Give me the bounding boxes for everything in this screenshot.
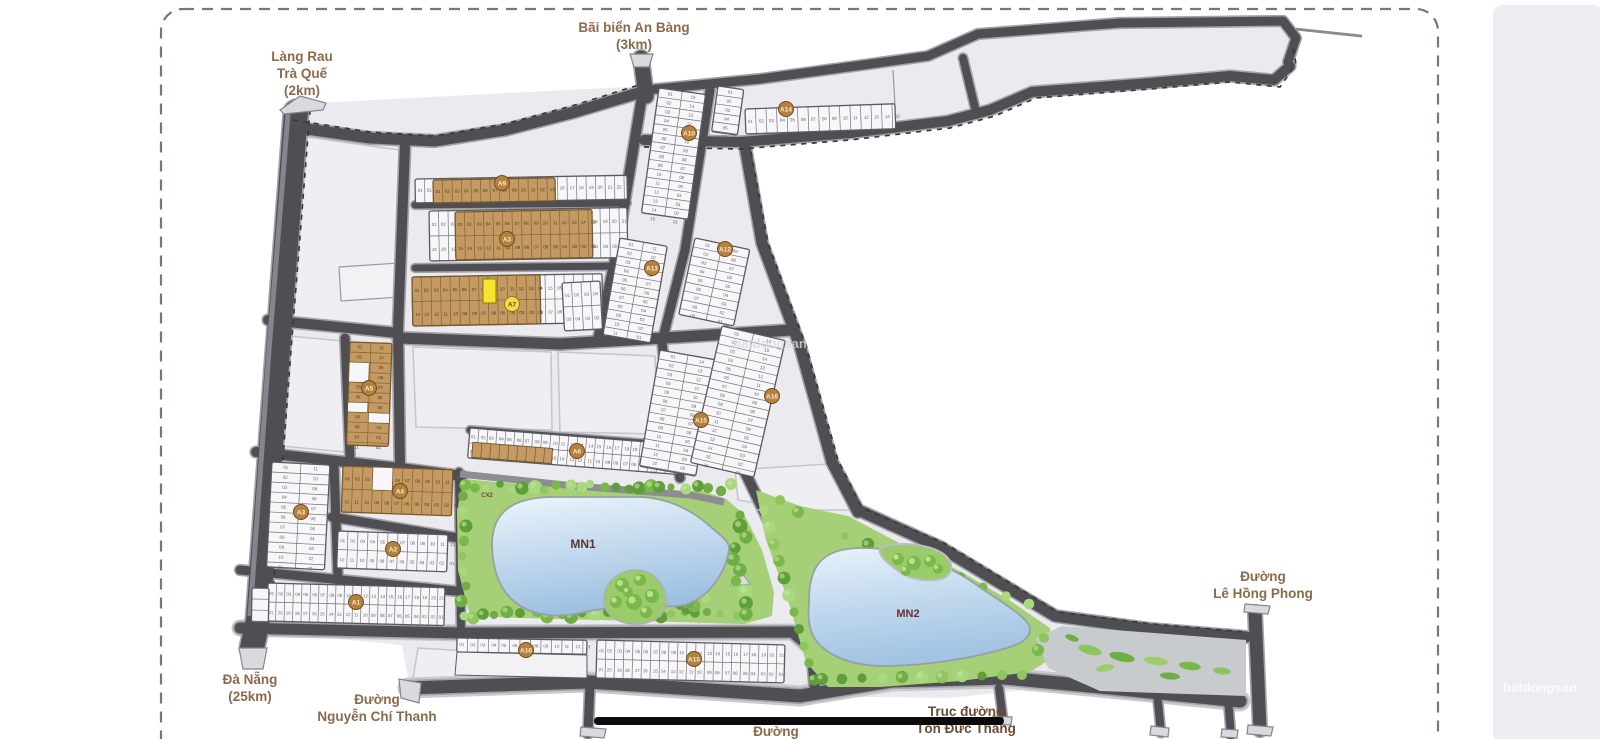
svg-text:12: 12	[339, 557, 345, 562]
svg-text:09: 09	[420, 541, 426, 546]
svg-text:16: 16	[557, 285, 563, 290]
svg-text:04: 04	[625, 649, 631, 654]
svg-text:05: 05	[790, 117, 796, 122]
svg-text:07: 07	[548, 310, 554, 315]
svg-text:11: 11	[440, 542, 445, 547]
svg-text:A3: A3	[503, 237, 512, 244]
svg-text:03: 03	[572, 244, 578, 249]
svg-text:15: 15	[725, 651, 731, 656]
svg-text:12: 12	[679, 669, 685, 674]
svg-text:08: 08	[524, 221, 530, 226]
svg-text:13: 13	[371, 594, 377, 599]
svg-text:07: 07	[405, 478, 411, 483]
svg-text:06: 06	[462, 287, 468, 292]
svg-text:MN1: MN1	[570, 537, 596, 551]
svg-text:15: 15	[458, 246, 464, 251]
svg-text:18: 18	[751, 652, 757, 657]
svg-text:06: 06	[557, 309, 563, 314]
svg-text:04: 04	[443, 287, 449, 292]
svg-text:04: 04	[575, 316, 581, 321]
svg-text:05: 05	[453, 287, 459, 292]
svg-text:14: 14	[581, 220, 587, 225]
svg-text:21: 21	[599, 667, 605, 672]
svg-text:07: 07	[394, 501, 400, 506]
svg-text:16: 16	[397, 594, 403, 599]
svg-text:18: 18	[625, 668, 631, 673]
svg-text:17: 17	[303, 611, 309, 616]
svg-text:Đường: Đường	[1240, 569, 1286, 584]
svg-text:07: 07	[280, 525, 286, 530]
svg-text:08: 08	[533, 643, 539, 648]
svg-text:07: 07	[378, 385, 384, 390]
svg-text:14: 14	[467, 246, 473, 251]
svg-text:09: 09	[312, 486, 318, 491]
svg-text:A2: A2	[389, 547, 398, 554]
svg-text:15: 15	[653, 668, 659, 673]
svg-text:01: 01	[283, 465, 289, 470]
svg-text:08: 08	[661, 650, 667, 655]
svg-text:09: 09	[279, 544, 285, 549]
svg-text:06: 06	[733, 671, 739, 676]
svg-text:A15: A15	[688, 657, 700, 664]
svg-text:06: 06	[356, 394, 362, 399]
svg-text:14: 14	[885, 114, 891, 119]
svg-text:10: 10	[430, 541, 436, 546]
svg-text:A4: A4	[396, 489, 405, 496]
svg-text:01: 01	[565, 293, 571, 298]
svg-text:02: 02	[278, 591, 284, 596]
svg-text:11: 11	[565, 644, 570, 649]
svg-text:03: 03	[434, 502, 440, 507]
svg-text:08: 08	[355, 414, 361, 419]
svg-text:10: 10	[435, 479, 441, 484]
svg-text:09: 09	[462, 311, 468, 316]
svg-text:05: 05	[501, 643, 507, 648]
svg-text:Trục đường: Trục đường	[928, 704, 1004, 719]
svg-text:05: 05	[356, 384, 362, 389]
svg-text:06: 06	[483, 188, 489, 193]
svg-text:02: 02	[427, 188, 433, 193]
svg-text:15: 15	[388, 594, 394, 599]
svg-text:04: 04	[295, 592, 301, 597]
svg-text:04: 04	[414, 614, 420, 619]
svg-text:16: 16	[733, 652, 739, 657]
svg-text:02: 02	[467, 222, 473, 227]
svg-text:12: 12	[450, 542, 456, 547]
svg-text:05: 05	[405, 614, 411, 619]
svg-text:02: 02	[431, 614, 437, 619]
svg-text:02: 02	[350, 538, 356, 543]
svg-text:07: 07	[388, 613, 394, 618]
svg-text:16: 16	[560, 185, 566, 190]
svg-text:A5: A5	[365, 386, 374, 393]
svg-text:03: 03	[286, 591, 292, 596]
svg-text:05: 05	[310, 526, 316, 531]
svg-text:12: 12	[363, 593, 369, 598]
svg-text:08: 08	[415, 479, 421, 484]
svg-text:09: 09	[534, 221, 540, 226]
svg-text:10: 10	[843, 115, 849, 120]
svg-text:02: 02	[441, 222, 447, 227]
svg-text:10: 10	[697, 670, 703, 675]
svg-text:04: 04	[562, 244, 568, 249]
svg-text:05: 05	[414, 502, 420, 507]
svg-text:21: 21	[605, 285, 611, 290]
svg-text:03: 03	[377, 425, 383, 430]
svg-text:Trà Quế: Trà Quế	[277, 66, 328, 81]
svg-text:08: 08	[822, 116, 828, 121]
svg-text:01: 01	[459, 642, 465, 647]
svg-text:02: 02	[283, 475, 289, 480]
svg-text:03: 03	[455, 189, 461, 194]
svg-text:09: 09	[425, 479, 431, 484]
svg-text:03: 03	[282, 485, 288, 490]
svg-text:(2km): (2km)	[284, 83, 320, 98]
svg-text:16: 16	[643, 668, 649, 673]
svg-text:09: 09	[543, 644, 549, 649]
svg-text:07: 07	[320, 592, 326, 597]
svg-text:batdongsan: batdongsan	[733, 336, 807, 351]
svg-text:14: 14	[715, 651, 721, 656]
svg-text:06: 06	[312, 592, 318, 597]
svg-text:19: 19	[603, 219, 609, 224]
svg-text:03: 03	[429, 560, 435, 565]
svg-text:20: 20	[769, 653, 775, 658]
svg-text:06: 06	[397, 613, 403, 618]
svg-text:12: 12	[575, 644, 581, 649]
svg-text:09: 09	[355, 424, 361, 429]
svg-text:CX2: CX2	[481, 493, 493, 499]
svg-text:03: 03	[480, 642, 486, 647]
svg-text:09: 09	[374, 500, 380, 505]
svg-text:02: 02	[594, 315, 600, 320]
svg-text:13: 13	[707, 651, 713, 656]
svg-text:02: 02	[607, 648, 613, 653]
svg-text:11: 11	[853, 115, 858, 120]
svg-text:05: 05	[409, 560, 415, 565]
svg-text:13: 13	[585, 644, 591, 649]
svg-text:06: 06	[311, 516, 317, 521]
svg-text:05: 05	[380, 539, 386, 544]
svg-text:06: 06	[399, 559, 405, 564]
svg-text:15: 15	[895, 114, 901, 119]
svg-text:05: 05	[500, 310, 506, 315]
svg-text:12: 12	[540, 187, 546, 192]
svg-text:12: 12	[519, 286, 525, 291]
svg-text:19: 19	[617, 668, 623, 673]
svg-text:01: 01	[269, 591, 275, 596]
svg-text:08: 08	[384, 500, 390, 505]
svg-text:11: 11	[510, 286, 515, 291]
svg-text:12: 12	[864, 115, 870, 120]
svg-text:13: 13	[477, 246, 483, 251]
svg-text:13: 13	[874, 114, 880, 119]
svg-text:01: 01	[376, 445, 382, 450]
svg-text:06: 06	[505, 221, 511, 226]
svg-text:01: 01	[340, 538, 346, 543]
svg-text:06: 06	[404, 501, 410, 506]
svg-text:08: 08	[379, 558, 385, 563]
svg-text:09: 09	[369, 558, 375, 563]
svg-text:10: 10	[679, 650, 685, 655]
svg-text:23: 23	[627, 184, 633, 189]
svg-text:19: 19	[761, 652, 767, 657]
svg-text:11: 11	[278, 564, 283, 569]
svg-text:01: 01	[432, 222, 438, 227]
svg-text:14: 14	[415, 312, 421, 317]
svg-text:10: 10	[554, 644, 560, 649]
svg-text:A9: A9	[498, 181, 507, 188]
svg-text:02: 02	[470, 642, 476, 647]
svg-text:11: 11	[553, 220, 558, 225]
svg-text:05: 05	[553, 244, 559, 249]
svg-text:01: 01	[748, 119, 754, 124]
svg-text:15: 15	[548, 286, 554, 291]
svg-text:Lê Hồng Phong: Lê Hồng Phong	[1213, 586, 1313, 601]
svg-text:10: 10	[543, 220, 549, 225]
svg-text:18: 18	[414, 595, 420, 600]
svg-text:20: 20	[278, 610, 284, 615]
svg-text:02: 02	[355, 476, 361, 481]
svg-text:10: 10	[521, 187, 527, 192]
svg-text:06: 06	[512, 643, 518, 648]
svg-text:05: 05	[603, 291, 609, 296]
svg-text:19: 19	[589, 185, 595, 190]
svg-text:01: 01	[779, 672, 785, 677]
svg-text:13: 13	[529, 286, 535, 291]
svg-text:20: 20	[607, 667, 613, 672]
svg-text:12: 12	[486, 245, 492, 250]
svg-text:02: 02	[444, 503, 450, 508]
svg-text:05: 05	[474, 188, 480, 193]
svg-text:10: 10	[500, 286, 506, 291]
svg-text:A1: A1	[352, 600, 361, 607]
svg-text:14: 14	[329, 612, 335, 617]
svg-text:01: 01	[357, 344, 363, 349]
svg-text:07: 07	[725, 670, 731, 675]
svg-text:02: 02	[424, 288, 430, 293]
svg-text:03: 03	[360, 539, 366, 544]
svg-text:05: 05	[303, 592, 309, 597]
svg-text:06: 06	[281, 515, 287, 520]
svg-text:01: 01	[345, 476, 351, 481]
svg-text:08: 08	[524, 245, 530, 250]
svg-text:21: 21	[608, 185, 614, 190]
svg-text:21: 21	[432, 247, 438, 252]
svg-text:11: 11	[689, 669, 694, 674]
svg-text:04: 04	[282, 495, 288, 500]
svg-text:07: 07	[389, 559, 395, 564]
svg-text:09: 09	[707, 670, 713, 675]
svg-text:10: 10	[313, 476, 319, 481]
svg-text:01: 01	[591, 244, 597, 249]
svg-text:06: 06	[378, 395, 384, 400]
svg-text:01: 01	[308, 566, 314, 571]
svg-text:04: 04	[486, 221, 492, 226]
svg-text:12: 12	[562, 220, 568, 225]
svg-text:01: 01	[436, 189, 442, 194]
svg-text:A15: A15	[695, 418, 707, 425]
svg-text:12: 12	[344, 499, 350, 504]
svg-text:03: 03	[584, 292, 590, 297]
svg-text:03: 03	[434, 288, 440, 293]
svg-text:A16: A16	[520, 648, 532, 655]
svg-text:11: 11	[379, 345, 384, 350]
svg-text:09: 09	[671, 650, 677, 655]
svg-text:05: 05	[743, 671, 749, 676]
svg-text:07: 07	[653, 649, 659, 654]
svg-text:01: 01	[439, 614, 445, 619]
svg-text:08: 08	[472, 311, 478, 316]
svg-text:02: 02	[439, 561, 445, 566]
svg-text:03: 03	[585, 316, 591, 321]
svg-text:Nguyễn Chí Thanh: Nguyễn Chí Thanh	[317, 709, 436, 724]
svg-text:14: 14	[380, 594, 386, 599]
svg-text:11: 11	[350, 557, 355, 562]
svg-text:04: 04	[370, 539, 376, 544]
svg-text:A3: A3	[297, 510, 306, 517]
svg-text:16: 16	[312, 611, 318, 616]
svg-text:batdongsan: batdongsan	[1503, 680, 1577, 695]
svg-text:A12: A12	[719, 247, 731, 254]
svg-text:14: 14	[538, 286, 544, 291]
svg-text:07: 07	[515, 221, 521, 226]
svg-text:17: 17	[570, 185, 576, 190]
svg-text:10: 10	[379, 355, 385, 360]
svg-text:03: 03	[769, 118, 775, 123]
svg-text:09: 09	[371, 613, 377, 618]
svg-text:11: 11	[354, 612, 359, 617]
svg-text:03: 03	[365, 477, 371, 482]
svg-text:04: 04	[491, 643, 497, 648]
svg-text:.com.vn: .com.vn	[1528, 701, 1553, 708]
svg-text:21: 21	[269, 610, 275, 615]
svg-text:01: 01	[415, 288, 421, 293]
svg-text:08: 08	[280, 535, 286, 540]
svg-text:13: 13	[424, 312, 430, 317]
svg-text:06: 06	[395, 478, 401, 483]
svg-text:Đà Nẵng: Đà Nẵng	[223, 672, 278, 687]
svg-text:02: 02	[769, 672, 775, 677]
svg-text:20: 20	[612, 219, 618, 224]
svg-text:08: 08	[329, 593, 335, 598]
svg-text:05: 05	[281, 505, 287, 510]
svg-text:03: 03	[422, 614, 428, 619]
svg-text:A16: A16	[766, 394, 778, 401]
svg-text:02: 02	[529, 310, 535, 315]
svg-text:06: 06	[801, 117, 807, 122]
svg-text:22: 22	[617, 184, 623, 189]
svg-text:08: 08	[312, 496, 318, 501]
svg-text:09: 09	[515, 245, 521, 250]
svg-text:04: 04	[309, 536, 315, 541]
svg-text:02: 02	[759, 118, 765, 123]
svg-text:15: 15	[320, 611, 326, 616]
svg-text:Đường: Đường	[354, 692, 400, 707]
svg-text:01: 01	[418, 188, 424, 193]
svg-text:03: 03	[519, 310, 525, 315]
svg-text:05: 05	[496, 221, 502, 226]
svg-text:A13: A13	[646, 266, 658, 273]
svg-text:12: 12	[434, 312, 440, 317]
svg-text:02: 02	[357, 354, 363, 359]
svg-text:A14: A14	[780, 107, 792, 114]
svg-text:21: 21	[779, 653, 785, 658]
svg-text:13: 13	[572, 220, 578, 225]
svg-text:01: 01	[449, 561, 455, 566]
svg-text:09: 09	[337, 593, 343, 598]
svg-text:04: 04	[780, 118, 786, 123]
svg-text:11: 11	[496, 245, 501, 250]
svg-text:06: 06	[543, 244, 549, 249]
svg-text:04: 04	[464, 188, 470, 193]
svg-text:09: 09	[512, 188, 518, 193]
svg-text:01: 01	[458, 222, 464, 227]
svg-text:07: 07	[811, 117, 817, 122]
svg-text:03: 03	[761, 671, 767, 676]
svg-text:20: 20	[598, 185, 604, 190]
svg-text:08: 08	[410, 541, 416, 546]
svg-text:02: 02	[581, 244, 587, 249]
svg-text:(3km): (3km)	[616, 37, 652, 52]
svg-text:01: 01	[454, 503, 460, 508]
svg-text:03: 03	[309, 546, 315, 551]
svg-text:11: 11	[445, 480, 450, 485]
svg-text:09: 09	[379, 365, 385, 370]
svg-text:01: 01	[599, 648, 605, 653]
svg-text:11: 11	[354, 444, 359, 449]
svg-text:10: 10	[354, 434, 360, 439]
svg-text:10: 10	[359, 558, 365, 563]
svg-text:Đường: Đường	[753, 724, 799, 739]
svg-text:02: 02	[445, 189, 451, 194]
svg-text:07: 07	[534, 245, 540, 250]
svg-text:01: 01	[538, 310, 544, 315]
svg-text:10: 10	[278, 554, 284, 559]
svg-text:08: 08	[715, 670, 721, 675]
svg-text:15: 15	[591, 220, 597, 225]
svg-text:17: 17	[405, 595, 411, 600]
svg-text:19: 19	[422, 595, 428, 600]
svg-text:07: 07	[400, 540, 406, 545]
svg-text:11: 11	[443, 311, 448, 316]
svg-text:18: 18	[579, 185, 585, 190]
svg-text:11: 11	[354, 499, 359, 504]
svg-text:10: 10	[453, 311, 459, 316]
svg-text:07: 07	[481, 311, 487, 316]
svg-text:Bãi biển An Bàng: Bãi biển An Bàng	[578, 20, 689, 35]
svg-text:03: 03	[477, 222, 483, 227]
svg-text:03: 03	[603, 244, 609, 249]
svg-text:17: 17	[635, 668, 641, 673]
svg-text:10: 10	[364, 500, 370, 505]
svg-text:02: 02	[574, 292, 580, 297]
svg-text:12: 12	[455, 480, 461, 485]
svg-text:18: 18	[295, 611, 301, 616]
svg-text:21: 21	[439, 595, 445, 600]
svg-text:11: 11	[531, 187, 536, 192]
svg-text:A7: A7	[508, 302, 517, 309]
svg-text:11: 11	[313, 466, 318, 471]
svg-text:04: 04	[419, 560, 425, 565]
svg-text:19: 19	[286, 610, 292, 615]
svg-text:07: 07	[472, 287, 478, 292]
svg-text:13: 13	[671, 669, 677, 674]
svg-text:17: 17	[743, 652, 749, 657]
svg-text:A10: A10	[683, 131, 695, 138]
svg-text:Làng Rau: Làng Rau	[271, 49, 333, 64]
svg-text:05: 05	[635, 649, 641, 654]
